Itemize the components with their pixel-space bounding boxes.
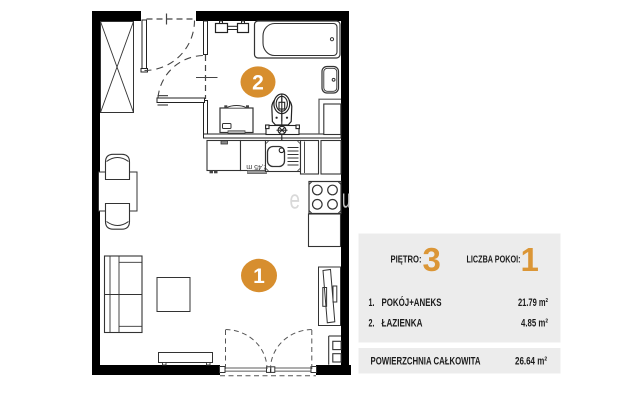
svg-text:21.79 m²: 21.79 m²	[518, 297, 548, 309]
svg-text:u: u	[342, 184, 351, 214]
svg-text:26.64 m²: 26.64 m²	[515, 356, 547, 368]
svg-text:4.85 m²: 4.85 m²	[521, 318, 548, 330]
svg-text:2,45 m: 2,45 m	[246, 163, 268, 170]
svg-text:ŁAZIENKA: ŁAZIENKA	[382, 318, 423, 330]
svg-text:2.: 2.	[369, 318, 375, 330]
svg-text:1: 1	[521, 241, 539, 278]
svg-text:e: e	[290, 185, 301, 215]
svg-text:2: 2	[252, 72, 264, 95]
svg-text:3: 3	[423, 241, 441, 278]
svg-text:POKÓJ+ANEKS: POKÓJ+ANEKS	[382, 296, 442, 309]
svg-text:1.: 1.	[369, 297, 375, 309]
svg-text:LICZBA POKOI:: LICZBA POKOI:	[467, 254, 521, 265]
svg-text:PIĘTRO:: PIĘTRO:	[391, 254, 422, 265]
svg-text:POWIERZCHNIA CAŁKOWITA: POWIERZCHNIA CAŁKOWITA	[371, 356, 481, 368]
svg-text:1: 1	[253, 265, 265, 288]
